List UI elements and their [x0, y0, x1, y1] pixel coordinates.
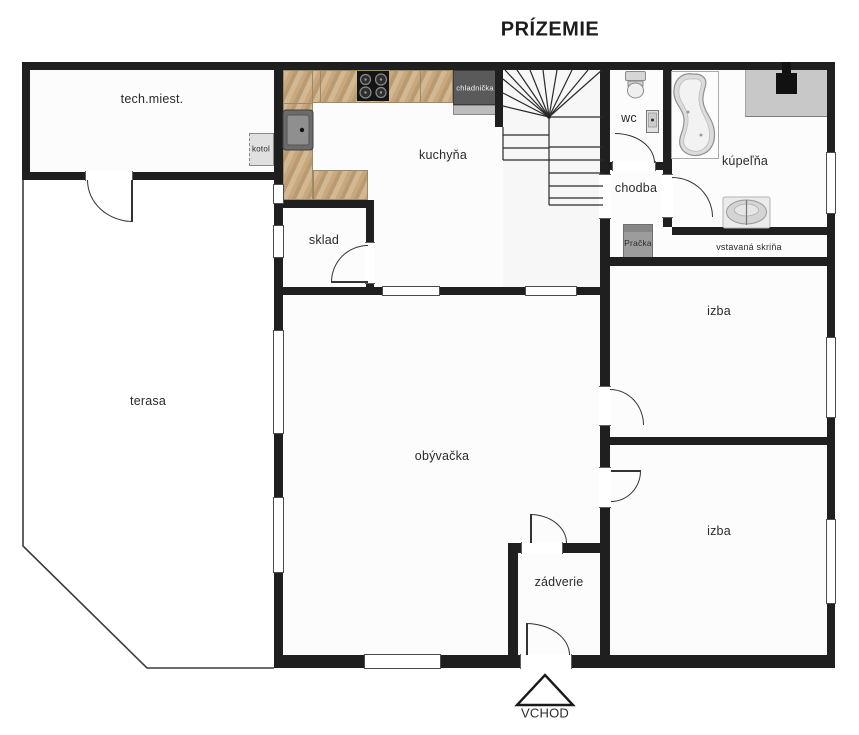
- room-label-closet: vstavaná skriňa: [716, 242, 782, 252]
- room-label-hallway: chodba: [615, 181, 657, 195]
- window-room-bottom-east: [826, 519, 836, 604]
- room-label-vestibule: zádverie: [535, 575, 584, 589]
- door-opening-vestibule: [521, 542, 563, 554]
- wall-closet-bottom: [600, 257, 835, 266]
- page-title: PRÍZEMIE: [501, 19, 599, 42]
- terrace-outline: [23, 180, 274, 668]
- entrance-arrow-icon: [517, 675, 573, 705]
- wall-wc-bath: [663, 62, 672, 175]
- wall-wc-bath-b: [663, 217, 672, 227]
- wall-mid-vertical-d: [600, 507, 610, 655]
- door-leaf-room-bottom: [611, 470, 641, 472]
- wall-tech-bottom: [22, 172, 283, 180]
- door-opening-room-bottom: [599, 467, 611, 508]
- kitchen-counter-bottom: [313, 170, 368, 200]
- passage-hallway: [599, 174, 611, 219]
- door-leaf-vestibule: [530, 514, 532, 543]
- wall-mid-vertical-b: [600, 218, 610, 387]
- boiler-label: kotol: [252, 145, 270, 154]
- fridge-base: [453, 105, 497, 115]
- door-arc-terrace: [87, 180, 133, 222]
- wall-room-divider: [600, 437, 835, 445]
- wall-vestibule-left: [508, 543, 518, 668]
- fridge-label: chladnička: [456, 84, 493, 93]
- door-leaf-storage: [331, 281, 368, 283]
- door-leaf-entrance: [526, 623, 528, 655]
- wall-storage-top: [274, 200, 374, 208]
- window-living-west-1: [273, 330, 284, 434]
- window-living-south: [364, 654, 441, 669]
- washing-machine-top: [624, 225, 652, 232]
- opening-kitchen-living-1: [382, 286, 440, 296]
- room-label-living: obývačka: [415, 449, 469, 463]
- room-label-wc: wc: [621, 111, 637, 125]
- counter-divider: [284, 103, 312, 104]
- window-room-top-east: [826, 337, 836, 418]
- floor-tech-room: [22, 62, 283, 180]
- room-label-bathroom: kúpeľňa: [722, 154, 768, 168]
- room-label-room-top: izba: [707, 304, 731, 318]
- wall-stair-stub: [495, 62, 503, 127]
- wall-bath-bottom: [672, 227, 827, 235]
- wall-outer-top: [22, 62, 835, 70]
- door-opening-entrance: [520, 654, 572, 669]
- window-storage-west: [273, 225, 284, 258]
- room-label-room-bottom: izba: [707, 524, 731, 538]
- counter-divider: [320, 71, 321, 102]
- entrance-label: VCHOD: [521, 706, 569, 721]
- window-kitchen-west: [273, 184, 284, 204]
- opening-kitchen-living-2: [525, 286, 577, 296]
- wall-mid-vertical-c: [600, 425, 610, 468]
- wall-mid-vertical-a: [600, 62, 610, 175]
- wall-tech-left: [22, 62, 30, 180]
- window-bathroom-east: [826, 152, 836, 214]
- room-label-storage: sklad: [309, 233, 339, 247]
- washer-label: Pračka: [624, 238, 652, 248]
- room-label-terrace: terasa: [130, 394, 166, 408]
- room-label-tech: tech.miest.: [121, 92, 184, 106]
- room-label-kitchen: kuchyňa: [419, 148, 467, 162]
- floor-stairwell: [503, 70, 600, 287]
- counter-divider: [420, 71, 421, 102]
- window-living-west-2: [273, 497, 284, 573]
- floor-plan: PRÍZEMIE tech.miest. kuchyňa chladnička …: [0, 0, 859, 735]
- kitchen-counter-left: [283, 70, 313, 200]
- bathroom-appliance: [776, 73, 797, 94]
- door-leaf-terrace: [131, 180, 133, 222]
